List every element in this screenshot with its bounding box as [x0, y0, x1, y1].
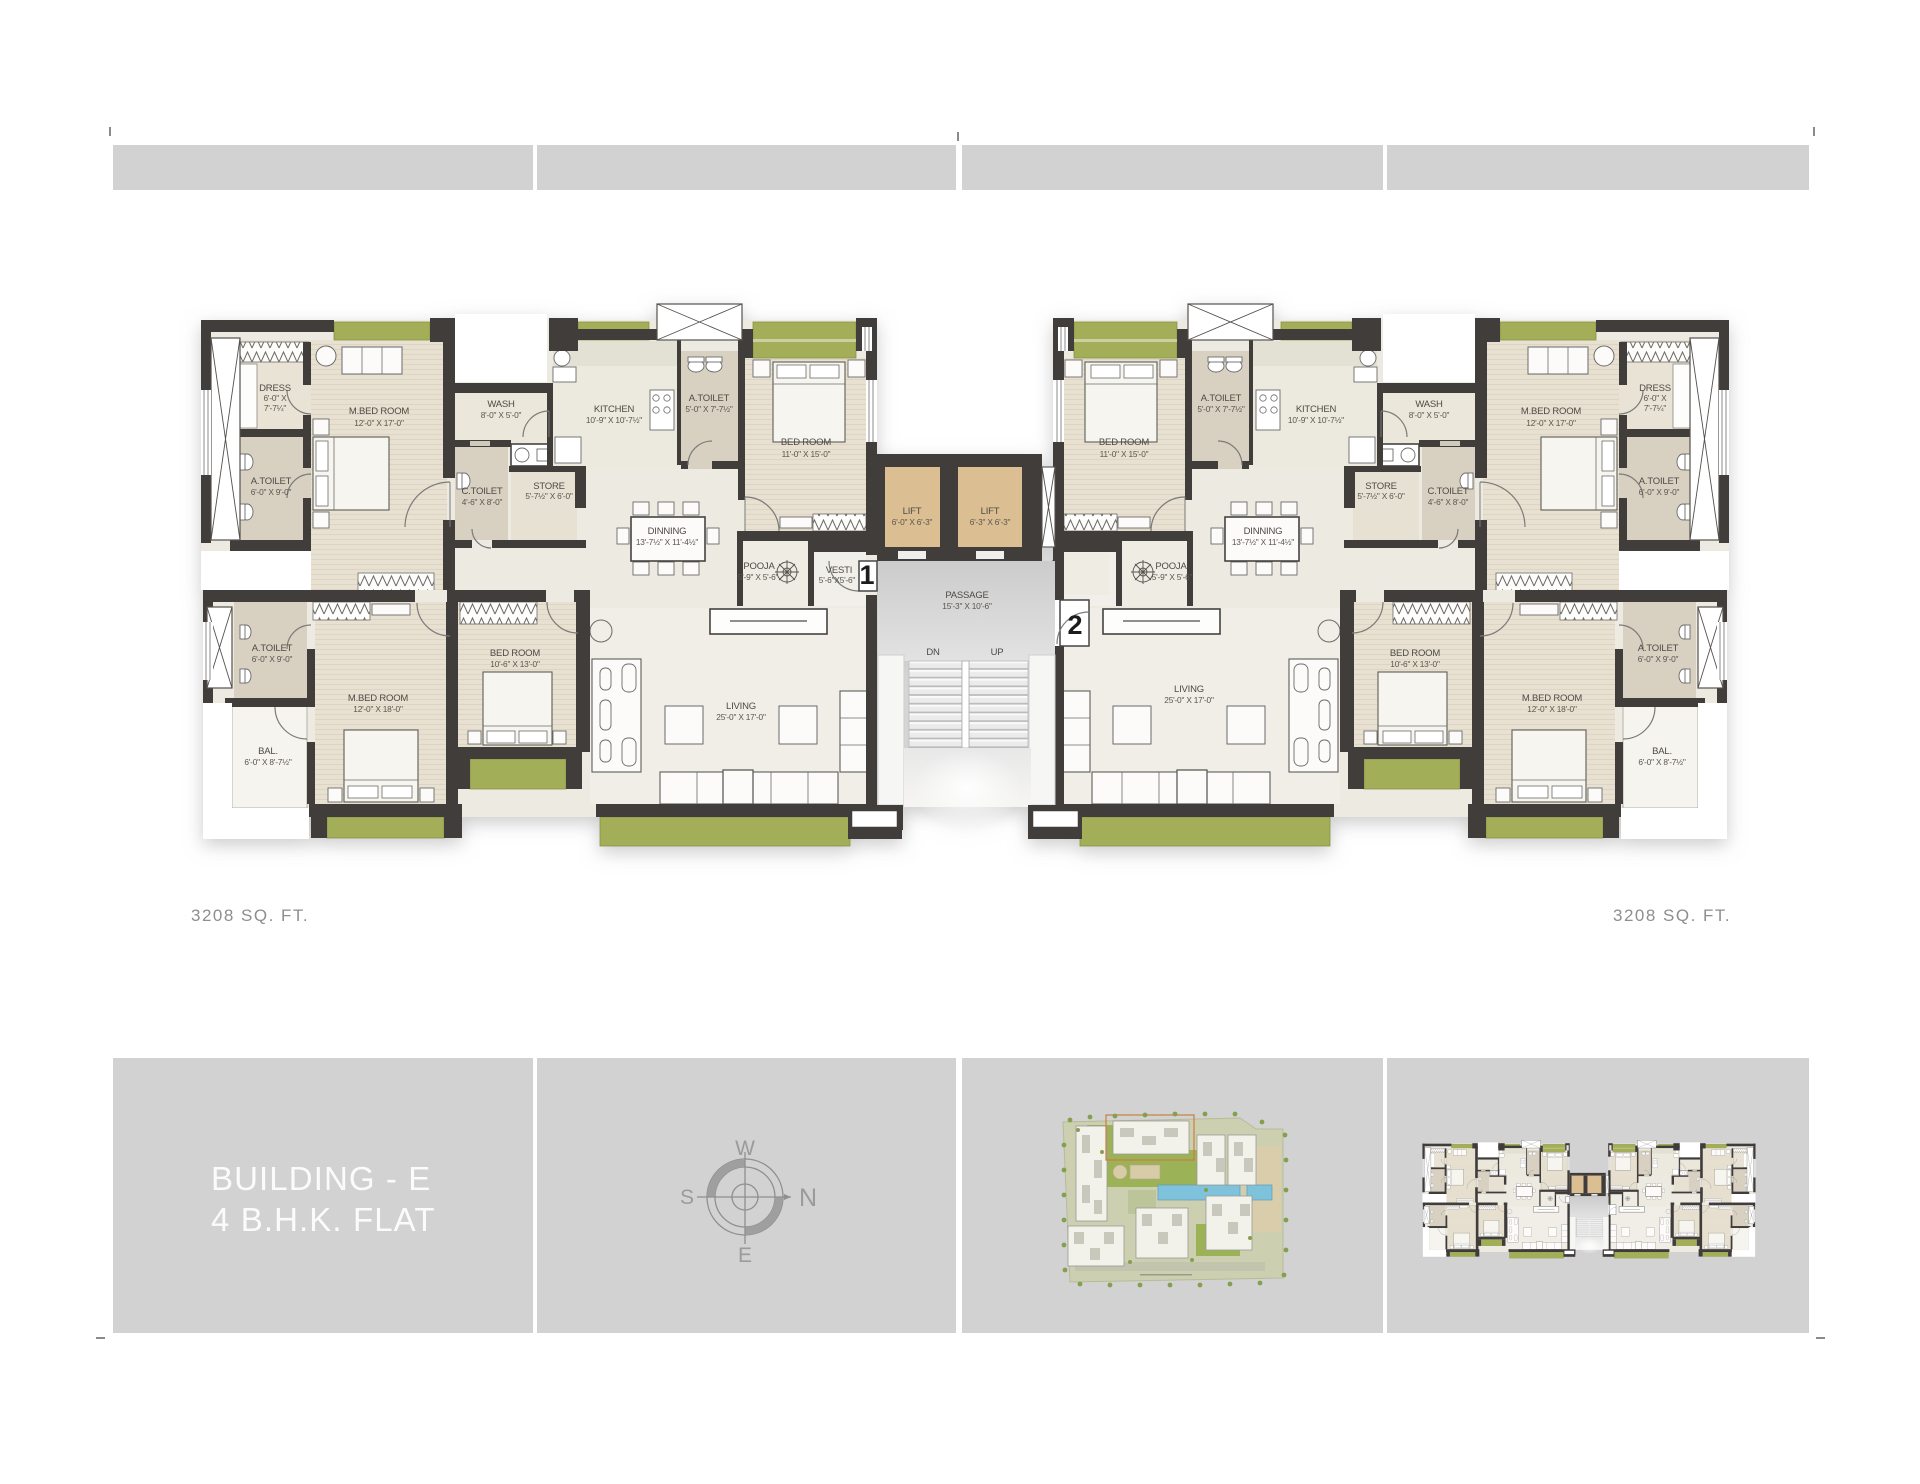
svg-text:5'-0" X 7'-7½": 5'-0" X 7'-7½" [1197, 404, 1245, 414]
svg-text:10'-9" X 10'-7½": 10'-9" X 10'-7½" [1288, 415, 1344, 425]
svg-text:BED ROOM: BED ROOM [490, 648, 540, 659]
svg-text:LIFT: LIFT [981, 506, 1000, 517]
svg-text:BUILDING - E: BUILDING - E [211, 1160, 431, 1197]
svg-text:15'-3" X 10'-6": 15'-3" X 10'-6" [942, 601, 992, 611]
svg-text:LIVING: LIVING [1174, 684, 1204, 695]
svg-text:12'-0" X 18'-0": 12'-0" X 18'-0" [1527, 704, 1577, 714]
svg-text:1: 1 [859, 560, 874, 590]
svg-text:WASH: WASH [487, 399, 515, 410]
svg-text:8'-0" X 5'-0": 8'-0" X 5'-0" [481, 410, 522, 420]
svg-text:13'-7½" X 11'-4½": 13'-7½" X 11'-4½" [636, 537, 698, 547]
svg-text:A.TOILET: A.TOILET [251, 476, 292, 487]
svg-text:DINNING: DINNING [648, 526, 687, 537]
svg-text:5'-7½" X 6'-0": 5'-7½" X 6'-0" [1357, 491, 1405, 501]
svg-text:DN: DN [926, 647, 940, 658]
svg-text:W: W [735, 1137, 755, 1160]
svg-text:10'-9" X 10'-7½": 10'-9" X 10'-7½" [586, 415, 642, 425]
svg-text:6'-0" X 6'-3": 6'-0" X 6'-3" [892, 517, 933, 527]
svg-text:BAL.: BAL. [258, 746, 278, 757]
svg-text:3208 SQ. FT.: 3208 SQ. FT. [191, 906, 309, 925]
svg-text:S: S [680, 1186, 694, 1209]
svg-text:6'-0" X 9'-0": 6'-0" X 9'-0" [1639, 487, 1680, 497]
svg-text:A.TOILET: A.TOILET [1638, 643, 1679, 654]
svg-text:E: E [738, 1244, 752, 1267]
svg-text:6'-0" X: 6'-0" X [1644, 393, 1668, 403]
svg-text:11'-0" X 15'-0": 11'-0" X 15'-0" [1100, 449, 1149, 459]
svg-text:7'-7¼": 7'-7¼" [264, 403, 286, 413]
svg-text:BAL.: BAL. [1652, 746, 1672, 757]
svg-text:KITCHEN: KITCHEN [1296, 404, 1337, 415]
svg-text:4'-6" X 8'-0": 4'-6" X 8'-0" [462, 497, 503, 507]
svg-text:12'-0" X 18'-0": 12'-0" X 18'-0" [353, 704, 403, 714]
svg-text:5'-7½" X 6'-0": 5'-7½" X 6'-0" [525, 491, 573, 501]
svg-text:LIFT: LIFT [903, 506, 922, 517]
svg-text:6'-0" X 9'-0": 6'-0" X 9'-0" [251, 487, 292, 497]
svg-text:8'-0" X 5'-0": 8'-0" X 5'-0" [1409, 410, 1450, 420]
svg-text:10'-6" X 13'-0": 10'-6" X 13'-0" [490, 659, 540, 669]
svg-text:LIVING: LIVING [726, 701, 756, 712]
svg-text:A.TOILET: A.TOILET [252, 643, 293, 654]
svg-text:PASSAGE: PASSAGE [945, 590, 988, 601]
svg-text:25'-0" X 17'-0": 25'-0" X 17'-0" [1164, 695, 1214, 705]
svg-text:12'-0" X 17'-0": 12'-0" X 17'-0" [1526, 418, 1576, 428]
svg-text:25'-0" X 17'-0": 25'-0" X 17'-0" [716, 712, 766, 722]
svg-text:3208 SQ. FT.: 3208 SQ. FT. [1613, 906, 1731, 925]
svg-text:C.TOILET: C.TOILET [1428, 486, 1469, 497]
svg-text:N: N [799, 1184, 817, 1212]
svg-text:6'-3" X 6'-3": 6'-3" X 6'-3" [970, 517, 1011, 527]
svg-text:6'-0" X 8'-7½": 6'-0" X 8'-7½" [1638, 757, 1686, 767]
svg-text:M.BED ROOM: M.BED ROOM [1521, 406, 1582, 417]
svg-text:6'-0" X 9'-0": 6'-0" X 9'-0" [252, 654, 293, 664]
svg-text:10'-6" X 13'-0": 10'-6" X 13'-0" [1390, 659, 1440, 669]
svg-text:KITCHEN: KITCHEN [594, 404, 635, 415]
svg-text:13'-7½" X 11'-4½": 13'-7½" X 11'-4½" [1232, 537, 1294, 547]
svg-text:M.BED ROOM: M.BED ROOM [1522, 693, 1583, 704]
svg-text:POOJA: POOJA [1155, 561, 1187, 572]
svg-text:6'-0" X 9'-0": 6'-0" X 9'-0" [1638, 654, 1679, 664]
svg-text:5'-9" X 5'-6": 5'-9" X 5'-6" [738, 572, 779, 582]
svg-text:M.BED ROOM: M.BED ROOM [349, 406, 410, 417]
svg-text:WASH: WASH [1415, 399, 1443, 410]
svg-text:A.TOILET: A.TOILET [1201, 393, 1242, 404]
svg-text:BED ROOM: BED ROOM [1390, 648, 1440, 659]
svg-text:11'-0" X 15'-0": 11'-0" X 15'-0" [782, 449, 831, 459]
svg-text:BED ROOM: BED ROOM [1099, 437, 1149, 448]
svg-text:DINNING: DINNING [1244, 526, 1283, 537]
svg-text:5'-0" X 7'-7½": 5'-0" X 7'-7½" [685, 404, 733, 414]
svg-text:12'-0" X 17'-0": 12'-0" X 17'-0" [354, 418, 404, 428]
svg-text:4'-6" X 8'-0": 4'-6" X 8'-0" [1428, 497, 1469, 507]
svg-text:6'-0" X: 6'-0" X [264, 393, 288, 403]
svg-text:A.TOILET: A.TOILET [1639, 476, 1680, 487]
svg-text:5'-6"X5'-6": 5'-6"X5'-6" [819, 575, 856, 585]
svg-text:POOJA: POOJA [743, 561, 775, 572]
svg-text:UP: UP [991, 647, 1004, 658]
svg-text:BED ROOM: BED ROOM [781, 437, 831, 448]
svg-text:2: 2 [1067, 610, 1082, 640]
svg-text:M.BED ROOM: M.BED ROOM [348, 693, 409, 704]
svg-text:6'-0" X 8'-7½": 6'-0" X 8'-7½" [244, 757, 292, 767]
svg-text:C.TOILET: C.TOILET [462, 486, 503, 497]
svg-text:5'-9" X 5'-6": 5'-9" X 5'-6" [1152, 572, 1193, 582]
svg-text:7'-7¼": 7'-7¼" [1644, 403, 1666, 413]
svg-text:4 B.H.K. FLAT: 4 B.H.K. FLAT [211, 1201, 436, 1238]
svg-text:A.TOILET: A.TOILET [689, 393, 730, 404]
